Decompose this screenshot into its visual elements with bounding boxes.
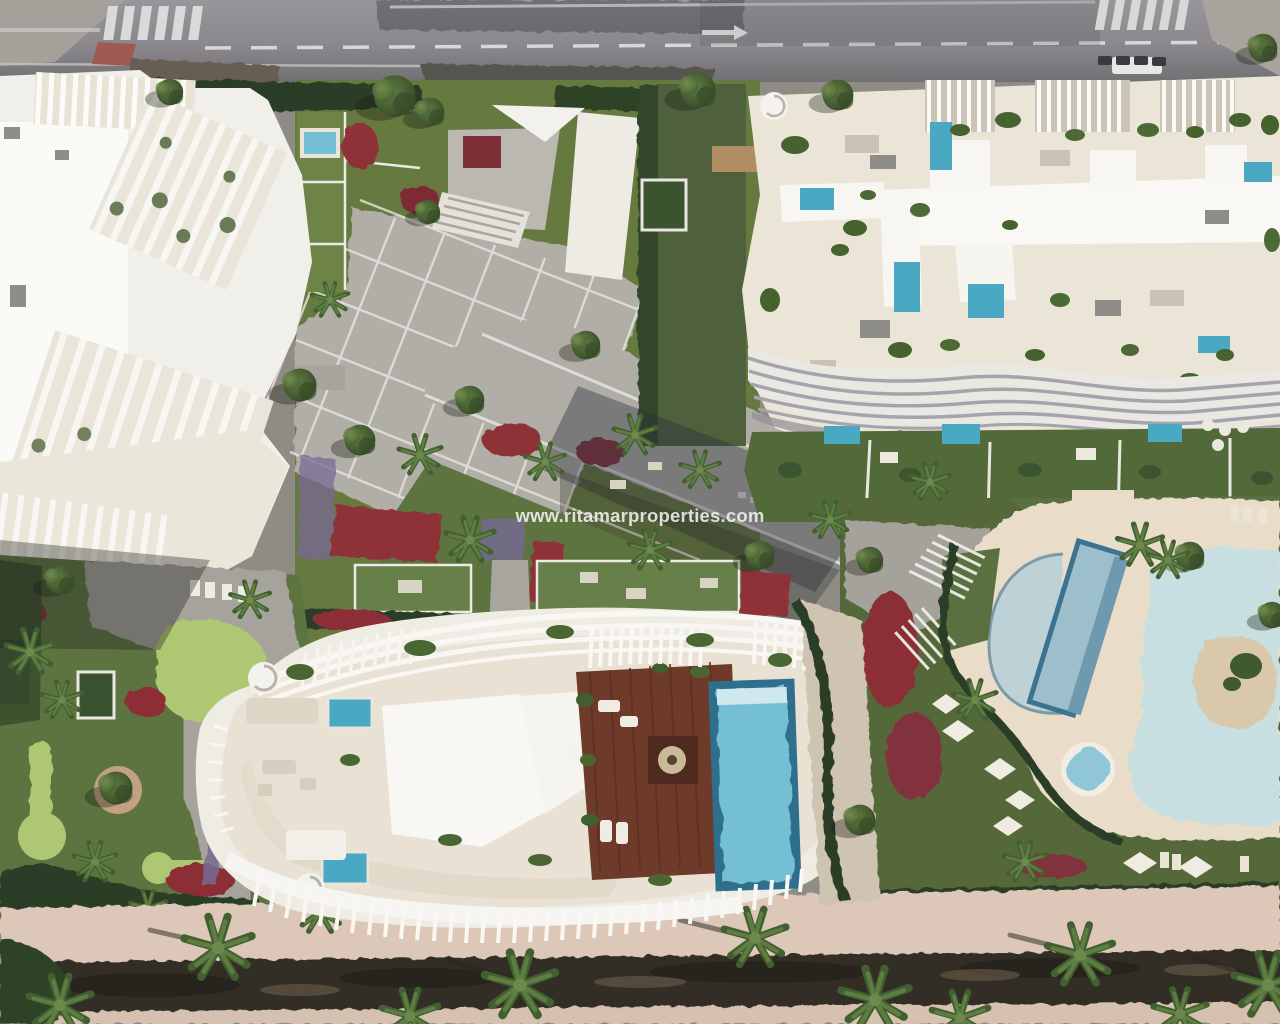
svg-text:www.ritamarproperties.com: www.ritamarproperties.com xyxy=(515,505,765,526)
